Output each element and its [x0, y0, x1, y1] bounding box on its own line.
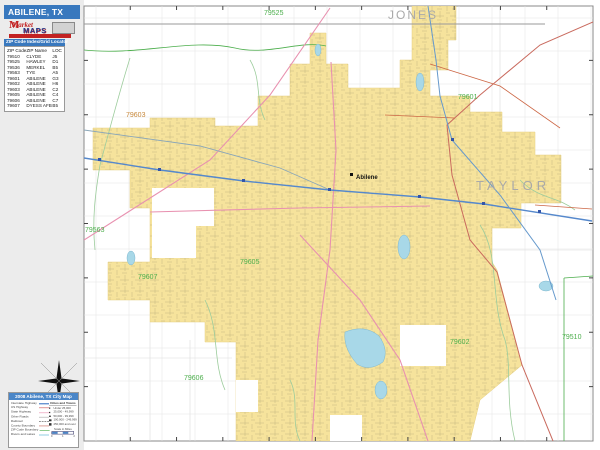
map-label-taylor: TAYLOR: [476, 178, 550, 193]
legend-road-symbols: Interstate HighwayUS HighwayState Highwa…: [11, 401, 49, 437]
map-label-79603: 79603: [126, 112, 146, 119]
scale-label: Scale in Miles: [49, 428, 77, 431]
map-label-79607: 79607: [138, 274, 158, 281]
map-label-jones: JONES: [388, 8, 438, 22]
map-poster-page: { "header": { "title": "ABILENE, TX" }, …: [0, 0, 600, 450]
legend-box: 2008 Abilene, TX City Map Interstate Hig…: [8, 392, 79, 448]
locator-header: ZIP Code Index/Grid Locator: [4, 39, 65, 46]
abilene-city-marker: [350, 173, 353, 176]
legend-cities-title: Cities and Towns: [49, 401, 77, 405]
map-label-79605: 79605: [240, 259, 260, 266]
legend-population-item: 250,000 and over: [49, 422, 77, 426]
logo-tagline-strip: [9, 34, 71, 38]
logo-badge: [52, 22, 75, 34]
marketmaps-logo: M Market MAPS: [9, 21, 75, 38]
legend-scale: Scale in Miles 012: [49, 428, 77, 438]
scale-ticks: 012: [51, 434, 75, 437]
map-title: ABILENE, TX: [4, 5, 80, 19]
map-label-79602: 79602: [450, 339, 470, 346]
map-label-79601: 79601: [458, 94, 478, 101]
legend-population-list: Under 25,00025,000 - 49,99950,000 - 99,9…: [49, 406, 77, 426]
locator-table: ZIP Code ZIP Name LOC 79510CLYDEJ579525H…: [4, 46, 65, 112]
map-label-79606: 79606: [184, 375, 204, 382]
locator-row: 79607DYESS AFBB5: [7, 103, 64, 109]
legend-title: 2008 Abilene, TX City Map: [9, 393, 78, 400]
map-label-abilene: Abilene: [356, 175, 378, 181]
zip-code-locator: ZIP Code Index/Grid Locator ZIP Code ZIP…: [4, 39, 65, 112]
map-label-79563: 79563: [85, 227, 105, 234]
map-label-79525: 79525: [264, 10, 284, 17]
legend-cities-column: Cities and Towns Under 25,00025,000 - 49…: [49, 401, 77, 437]
map-label-79510: 79510: [562, 334, 582, 341]
map-canvas: JONESTAYLORAbilene7952579601796037956379…: [0, 0, 600, 450]
locator-column-headers: ZIP Code ZIP Name LOC: [7, 48, 64, 54]
legend-road-item: Rivers and Lakes: [11, 433, 49, 438]
